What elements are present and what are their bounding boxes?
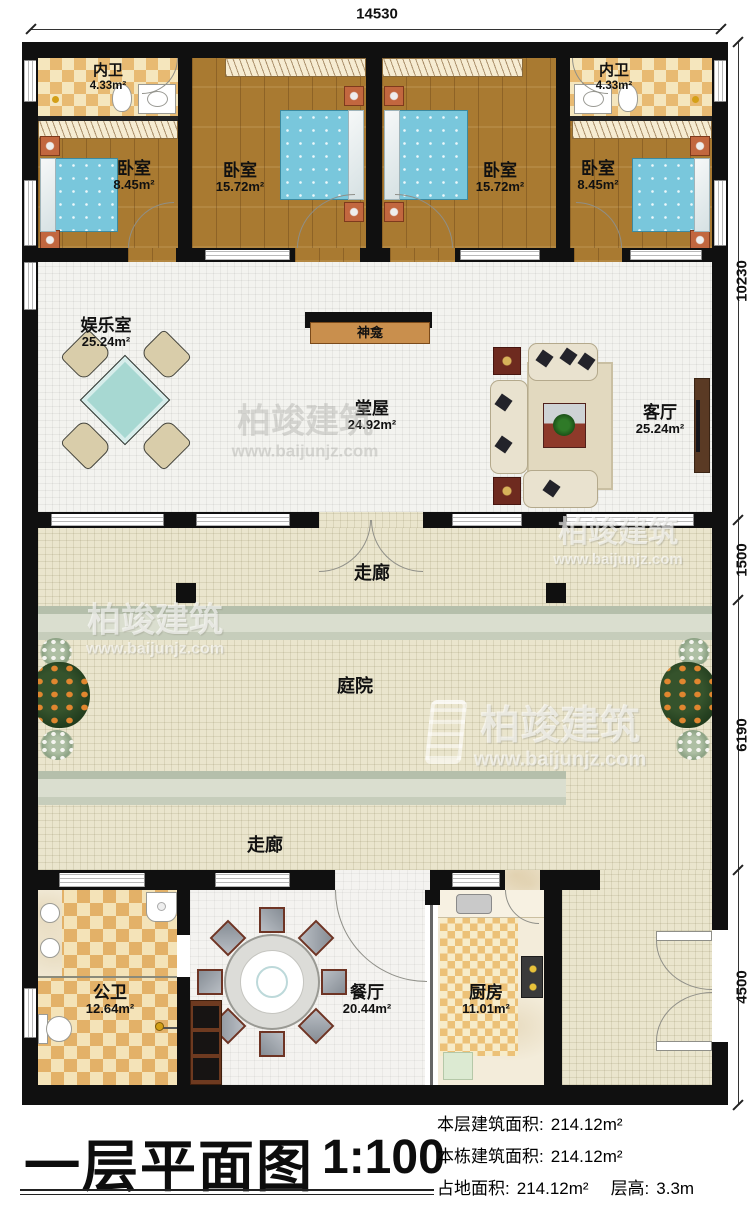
room-area: 8.45m² — [577, 178, 618, 193]
stat-floor-area: 本层建筑面积:214.12m² — [437, 1110, 623, 1135]
bed-pillow — [694, 158, 710, 232]
courtyard-path-lower — [38, 771, 566, 805]
cutting-board — [443, 1052, 473, 1080]
room-label-dining: 餐厅 20.44m² — [343, 983, 391, 1017]
room-area: 20.44m² — [343, 1002, 391, 1017]
plant — [676, 730, 710, 760]
nightstand — [40, 136, 60, 156]
kitchen-sink — [456, 894, 492, 914]
entry-door-opening — [712, 930, 728, 1042]
stat-label: 层高: — [611, 1179, 650, 1198]
room-name: 卧室 — [216, 161, 264, 180]
sofa — [523, 470, 598, 508]
stat-label: 本层建筑面积: — [437, 1115, 544, 1134]
watermark-site: www.baijunjz.com — [232, 442, 379, 462]
room-label-bath-right: 内卫 4.33m² — [596, 63, 632, 93]
window — [452, 514, 522, 526]
stat-value: 214.12m² — [517, 1179, 589, 1198]
wall-publicbath-dining — [177, 890, 190, 1085]
window — [24, 60, 36, 102]
wall-bath-partition — [570, 116, 712, 121]
entry-door-leaf — [656, 1041, 712, 1051]
watermark-brand: 柏竣建筑 — [232, 403, 379, 442]
dining-chair — [259, 907, 285, 933]
title-underline — [20, 1189, 434, 1191]
toilet-bowl — [46, 1016, 72, 1042]
column — [176, 583, 196, 603]
watermark-logo-icon — [425, 700, 468, 764]
watermark-brand: 柏竣建筑 — [553, 516, 682, 551]
wall-kitchen-entry — [544, 870, 562, 1085]
room-label-bedroom-large-left: 卧室 15.72m² — [216, 161, 264, 195]
dimension-right-entry: 4500 — [734, 970, 750, 1003]
dimension-top-value: 14530 — [356, 6, 398, 23]
side-table — [493, 477, 521, 505]
room-name: 餐厅 — [343, 983, 391, 1002]
room-area: 11.01m² — [462, 1002, 510, 1017]
room-label-recreation: 娱乐室 25.24m² — [81, 316, 132, 350]
room-name: 客厅 — [636, 403, 684, 422]
side-table — [493, 347, 521, 375]
plant — [660, 662, 718, 728]
window — [630, 250, 702, 260]
wall-center — [366, 42, 382, 248]
window — [196, 514, 290, 526]
door-opening — [505, 870, 540, 890]
watermark-brand: 柏竣建筑 — [86, 601, 224, 640]
plan-scale: 1:100 — [322, 1130, 445, 1185]
shower-drain — [157, 902, 166, 911]
room-name: 走廊 — [354, 563, 390, 583]
room-label-bedroom-small-left: 卧室 8.45m² — [113, 159, 154, 193]
room-label-corridor-upper: 走廊 — [354, 563, 390, 583]
sink-basin — [40, 938, 60, 958]
door-opening — [128, 248, 176, 262]
nightstand — [384, 86, 404, 106]
room-label-corridor-lower: 走廊 — [247, 835, 283, 855]
window — [205, 250, 290, 260]
room-area: 15.72m² — [216, 180, 264, 195]
watermark: 柏竣建筑 www.baijunjz.com — [86, 601, 224, 658]
nightstand — [690, 136, 710, 156]
room-name: 内卫 — [596, 63, 632, 80]
window — [24, 262, 36, 310]
watermark-site: www.baijunjz.com — [86, 640, 224, 658]
wall-divider — [178, 58, 192, 248]
room-area: 4.33m² — [596, 80, 632, 93]
towel-bar — [162, 1027, 177, 1029]
wall-hook — [692, 96, 699, 103]
entry-door-leaf — [656, 931, 712, 941]
room-name: 内卫 — [90, 63, 126, 80]
stat-value: 214.12m² — [551, 1115, 623, 1134]
room-name: 卧室 — [577, 159, 618, 178]
dimension-right-upper: 10230 — [734, 260, 750, 302]
stat-label: 占地面积: — [437, 1179, 510, 1198]
door-opening — [295, 248, 360, 262]
plant — [32, 662, 90, 728]
window — [215, 873, 290, 887]
wall-entry-stub — [562, 870, 600, 890]
room-area: 12.64m² — [86, 1002, 134, 1017]
wall-hook — [52, 96, 59, 103]
room-area: 8.45m² — [113, 178, 154, 193]
nightstand — [344, 86, 364, 106]
watermark-site: www.baijunjz.com — [474, 749, 647, 772]
wall-divider — [556, 58, 570, 248]
room-name: 走廊 — [247, 835, 283, 855]
wardrobe — [225, 58, 366, 77]
floor-plan: 内卫 4.33m² 卧室 8.45m² 卧室 15.72m² 卧室 15.72m… — [0, 0, 750, 1207]
room-name: 庭院 — [337, 676, 373, 696]
dimension-line-top — [30, 29, 722, 30]
title-underline — [20, 1194, 434, 1195]
room-label-courtyard: 庭院 — [337, 676, 373, 696]
bed-pillow — [40, 158, 56, 232]
wall-bath-partition — [38, 116, 178, 121]
room-name: 厨房 — [462, 983, 510, 1002]
window — [24, 180, 36, 246]
shrine-label: 神龛 — [357, 324, 383, 342]
stat-building-area: 本栋建筑面积:214.12m² — [437, 1142, 623, 1167]
room-label-living: 客厅 25.24m² — [636, 403, 684, 437]
sofa — [490, 380, 528, 474]
dimension-right-corridor: 1500 — [734, 543, 750, 576]
room-area: 25.24m² — [636, 422, 684, 437]
dining-chair — [197, 969, 223, 995]
watermark-site: www.baijunjz.com — [553, 551, 682, 568]
bed-pillow — [384, 110, 400, 200]
dimension-right-courtyard: 6190 — [734, 718, 750, 751]
room-label-bath-left: 内卫 4.33m² — [90, 63, 126, 93]
shoe-cabinet-door — [193, 1006, 219, 1028]
watermark: 柏竣建筑 www.baijunjz.com — [474, 703, 647, 772]
wardrobe — [382, 58, 523, 77]
room-label-public-bath: 公卫 12.64m² — [86, 983, 134, 1017]
shoe-cabinet-door — [193, 1058, 219, 1080]
door-opening — [335, 870, 430, 890]
bed-pillow — [348, 110, 364, 200]
window — [714, 180, 726, 246]
room-name: 神龛 — [357, 325, 383, 340]
sink-basin — [147, 91, 168, 107]
room-area: 15.72m² — [476, 180, 524, 195]
window — [51, 514, 164, 526]
stat-value: 3.3m — [656, 1179, 694, 1198]
wall-bottom — [22, 1085, 728, 1105]
plant — [40, 730, 74, 760]
dining-chair — [259, 1031, 285, 1057]
room-label-bedroom-small-right: 卧室 8.45m² — [577, 159, 618, 193]
room-label-kitchen: 厨房 11.01m² — [462, 983, 510, 1017]
wall-dining-kitchen-line — [430, 905, 433, 1085]
watermark-brand: 柏竣建筑 — [474, 703, 647, 749]
tv-screen — [696, 400, 700, 452]
window — [24, 988, 36, 1038]
stove — [521, 956, 543, 998]
room-name: 卧室 — [476, 161, 524, 180]
window — [460, 250, 540, 260]
nightstand — [690, 230, 710, 250]
window — [59, 873, 145, 887]
plant-decor — [553, 414, 575, 436]
dining-table-center — [256, 966, 288, 998]
door-opening — [390, 248, 455, 262]
partition-line — [38, 976, 177, 978]
stat-label: 本栋建筑面积: — [437, 1147, 544, 1166]
stat-value: 214.12m² — [551, 1147, 623, 1166]
shoe-cabinet-door — [193, 1032, 219, 1054]
door-opening — [574, 248, 622, 262]
room-name: 卧室 — [113, 159, 154, 178]
column — [546, 583, 566, 603]
sink-basin — [40, 903, 60, 923]
door-knob — [155, 1022, 164, 1031]
nightstand — [40, 230, 60, 250]
window — [714, 60, 726, 102]
room-area: 25.24m² — [81, 335, 132, 350]
window — [452, 873, 500, 887]
watermark: 柏竣建筑 www.baijunjz.com — [232, 403, 379, 462]
room-name: 公卫 — [86, 983, 134, 1002]
room-label-bedroom-large-right: 卧室 15.72m² — [476, 161, 524, 195]
room-name: 娱乐室 — [81, 316, 132, 335]
room-area: 4.33m² — [90, 80, 126, 93]
door-opening — [177, 935, 190, 977]
watermark: 柏竣建筑 www.baijunjz.com — [553, 516, 682, 568]
stat-footprint-height: 占地面积:214.12m²层高:3.3m — [437, 1174, 694, 1199]
